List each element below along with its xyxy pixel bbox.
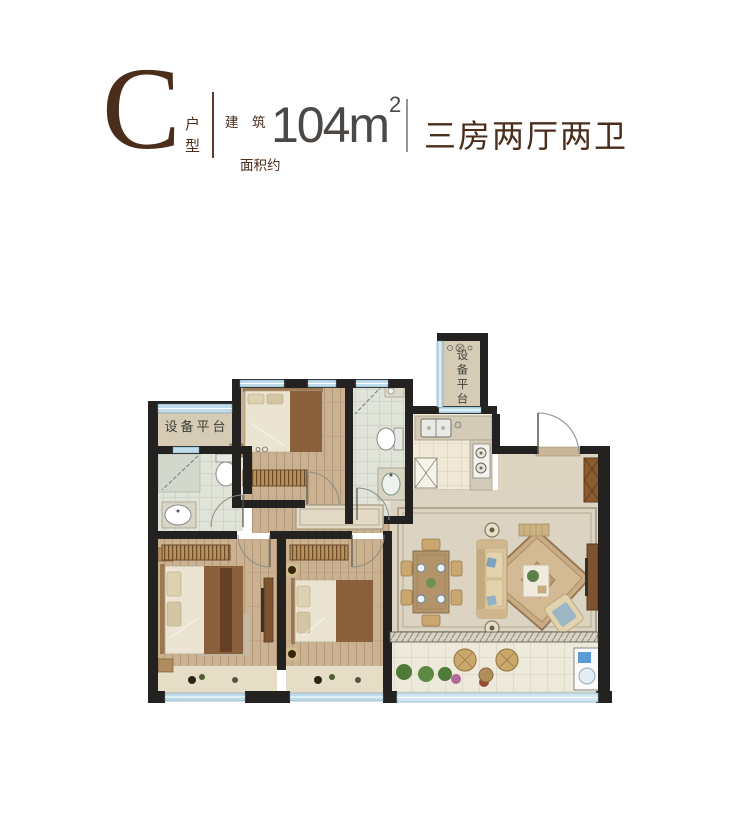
bed-headboard xyxy=(291,578,295,644)
bed-blanket xyxy=(290,391,322,452)
area-label-line2: 面积约 xyxy=(240,158,281,173)
tv-cabinet xyxy=(587,544,598,610)
sink-icon xyxy=(165,505,191,525)
wall xyxy=(277,539,286,670)
balcony-floor xyxy=(390,642,598,693)
wall xyxy=(245,691,290,703)
tv-icon xyxy=(585,558,588,596)
pillow xyxy=(297,586,310,607)
shower-area xyxy=(158,454,200,492)
pillow xyxy=(167,572,181,596)
middle-bay-sill xyxy=(286,666,383,693)
wall xyxy=(596,691,612,703)
bench xyxy=(519,524,549,536)
header-divider-1 xyxy=(212,92,214,158)
wardrobe xyxy=(290,545,348,560)
tv-icon xyxy=(261,588,264,632)
unit-letter: C xyxy=(102,50,181,168)
nightstand xyxy=(158,659,173,672)
pillow xyxy=(297,612,310,633)
tv-cabinet xyxy=(264,578,273,642)
shoe-cabinet xyxy=(584,458,600,502)
wardrobe xyxy=(243,470,307,486)
unit-letter-caption: 户型 xyxy=(185,114,202,158)
throw-pillow xyxy=(486,557,497,568)
flower-icon xyxy=(451,674,461,684)
wall xyxy=(492,446,538,454)
plate-icon xyxy=(417,564,425,572)
sliding-door-track xyxy=(390,632,598,642)
wall xyxy=(243,454,252,494)
window xyxy=(158,404,232,413)
washer-door xyxy=(579,668,595,684)
pillow xyxy=(248,394,264,404)
window xyxy=(356,380,388,387)
wall xyxy=(405,379,413,524)
centerpiece-plant-icon xyxy=(426,578,436,588)
wall xyxy=(383,531,392,693)
washer-panel xyxy=(578,652,591,663)
window xyxy=(165,693,245,701)
wall xyxy=(270,531,352,539)
lamp-icon xyxy=(288,566,296,574)
round-table xyxy=(479,668,493,682)
wall xyxy=(598,446,610,691)
wall xyxy=(155,531,237,539)
chair xyxy=(422,539,440,550)
plant-icon xyxy=(396,664,412,680)
wall xyxy=(148,401,158,691)
pillow xyxy=(167,602,181,626)
toilet-icon xyxy=(377,428,395,450)
chair xyxy=(422,615,440,626)
window xyxy=(308,380,336,387)
wall xyxy=(383,691,397,703)
wall xyxy=(480,333,488,414)
layout-description: 三房两厅两卫 xyxy=(424,111,628,157)
pillow xyxy=(267,394,283,404)
plant-icon xyxy=(418,666,434,682)
equipment-platform-top-label: 设备平台 xyxy=(443,342,480,413)
sofa-back xyxy=(477,540,485,618)
wall xyxy=(384,516,413,524)
chair xyxy=(451,590,462,605)
wall xyxy=(148,691,165,703)
throw-pillow xyxy=(486,595,496,605)
area-value: 104m xyxy=(271,96,388,154)
master-bay-sill xyxy=(158,666,277,693)
header-divider-2 xyxy=(406,99,408,152)
window xyxy=(240,380,284,387)
bed-runner xyxy=(220,568,232,652)
chair xyxy=(451,561,462,576)
area-label: 建 筑 面积约 xyxy=(225,112,271,177)
threshold xyxy=(536,447,580,456)
faucet-icon xyxy=(455,422,461,428)
floorplan-page: C 户型 建 筑 面积约 104m 2 三房两厅两卫 xyxy=(0,0,739,828)
area-label-line1: 建 筑 xyxy=(225,115,266,130)
plate-icon xyxy=(437,564,445,572)
floor-plan xyxy=(140,318,630,718)
wall-line xyxy=(158,401,232,404)
chair xyxy=(401,561,412,576)
balcony-railing xyxy=(397,693,598,702)
wardrobe xyxy=(162,545,230,560)
window xyxy=(173,447,199,453)
plant-icon xyxy=(438,667,452,681)
lamp-icon xyxy=(288,650,296,658)
chair xyxy=(401,590,412,605)
bed-headboard xyxy=(160,564,165,654)
wall xyxy=(232,379,241,504)
plant-icon xyxy=(527,570,539,582)
equipment-platform-left-label: 设备平台 xyxy=(158,414,232,440)
window xyxy=(290,693,383,701)
plate-icon xyxy=(417,595,425,603)
area-exponent: 2 xyxy=(389,92,401,118)
plate-icon xyxy=(437,595,445,603)
bed-blanket xyxy=(336,580,373,642)
wall xyxy=(345,379,353,524)
wall xyxy=(148,446,252,454)
